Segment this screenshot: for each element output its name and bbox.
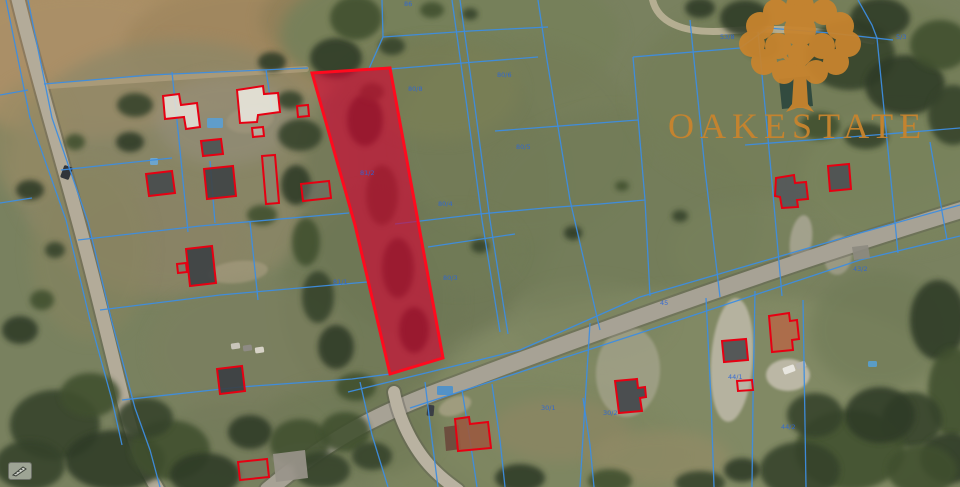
- building-roof: [722, 339, 748, 362]
- parcel-label: 86: [404, 0, 412, 8]
- tree-canopy: [379, 37, 405, 55]
- parcel-label: 80/4: [438, 200, 453, 208]
- pool: [437, 386, 453, 395]
- roof: [779, 76, 813, 109]
- terrain-patch: [155, 75, 295, 165]
- tree-canopy: [116, 132, 144, 152]
- pool: [207, 118, 223, 128]
- building-roof: [217, 366, 245, 394]
- satellite-map-canvas[interactable]: 8680/880/680/580/480/381/181/253/85/343/…: [0, 0, 960, 487]
- parcel-label: 45: [660, 299, 668, 307]
- building-roof: [186, 246, 216, 286]
- parcel-label: 44/2: [781, 423, 796, 431]
- tree-canopy: [117, 398, 173, 438]
- tree-canopy: [800, 112, 840, 140]
- parcel-label: 80/3: [443, 274, 458, 282]
- roof: [273, 450, 308, 482]
- tree-canopy: [117, 93, 153, 117]
- tree-canopy: [615, 181, 629, 191]
- tree-canopy: [228, 415, 272, 449]
- measure-icon: [12, 465, 28, 477]
- tree-canopy: [16, 180, 44, 200]
- parcel-label: 80/5: [516, 143, 531, 151]
- parcel-label: 81/2: [360, 169, 375, 177]
- map-viewport[interactable]: 8680/880/680/580/480/381/181/253/85/343/…: [0, 0, 960, 487]
- tree-canopy: [420, 2, 444, 18]
- car: [255, 346, 265, 353]
- tree-canopy: [672, 210, 688, 222]
- tree-canopy: [278, 119, 322, 151]
- tree-canopy: [352, 442, 392, 470]
- tree-canopy: [720, 0, 770, 36]
- measure-tool-button[interactable]: [8, 462, 32, 480]
- parcel-label: 43/2: [853, 265, 868, 273]
- parcel-label: 30/2: [603, 409, 618, 417]
- parcel-label: 53/8: [720, 33, 735, 41]
- tree-canopy: [318, 325, 354, 369]
- car: [243, 344, 253, 351]
- tree-canopy: [302, 271, 334, 323]
- car: [231, 342, 241, 349]
- parcel-label: 81/1: [333, 278, 348, 286]
- building-roof: [204, 166, 236, 199]
- tree-canopy: [462, 8, 478, 20]
- tree-canopy: [745, 33, 779, 59]
- tree-canopy: [845, 387, 915, 443]
- tree-canopy: [724, 458, 760, 482]
- building-roof: [828, 164, 851, 191]
- tree-canopy: [45, 242, 65, 258]
- pool: [868, 361, 877, 367]
- tree-canopy: [2, 316, 38, 344]
- tree-canopy: [65, 134, 85, 150]
- parcel-label: 80/8: [408, 85, 423, 93]
- tree-canopy: [30, 290, 54, 310]
- building-roof: [146, 171, 175, 196]
- parcel-label: 80/6: [497, 71, 512, 79]
- parcel-label: 30/1: [541, 404, 556, 412]
- parcel-label: 44/1: [728, 373, 743, 381]
- roof: [852, 245, 870, 260]
- parcel-label: 5/3: [896, 33, 906, 41]
- tree-canopy: [292, 218, 320, 266]
